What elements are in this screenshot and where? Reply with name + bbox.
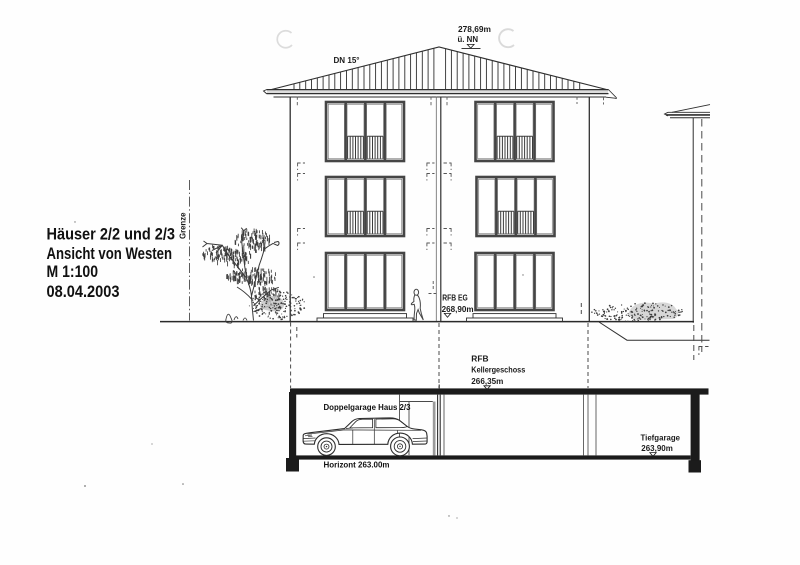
svg-text:M 1:100: M 1:100 <box>47 262 99 281</box>
svg-text:266,35m: 266,35m <box>471 376 503 386</box>
svg-text:Kellergeschoss: Kellergeschoss <box>471 365 525 375</box>
svg-text:08.04.2003: 08.04.2003 <box>47 282 120 301</box>
svg-text:Horizont 263.00m: Horizont 263.00m <box>324 459 390 469</box>
svg-text:Tiefgarage: Tiefgarage <box>641 433 681 443</box>
svg-text:Ansicht von Westen: Ansicht von Westen <box>47 244 173 263</box>
svg-text:ü. NN: ü. NN <box>458 34 479 44</box>
svg-text:Häuser 2/2 und 2/3: Häuser 2/2 und 2/3 <box>47 225 176 244</box>
svg-text:278,69m: 278,69m <box>458 24 491 34</box>
svg-text:Doppelgarage Haus 2/3: Doppelgarage Haus 2/3 <box>324 402 411 412</box>
svg-text:268,90m: 268,90m <box>442 304 474 314</box>
svg-text:263,90m: 263,90m <box>641 443 673 453</box>
svg-text:DN 15°: DN 15° <box>334 55 361 65</box>
svg-text:RFB EG: RFB EG <box>442 293 468 303</box>
svg-text:RFB: RFB <box>471 353 488 363</box>
svg-text:Grenze: Grenze <box>179 212 188 239</box>
